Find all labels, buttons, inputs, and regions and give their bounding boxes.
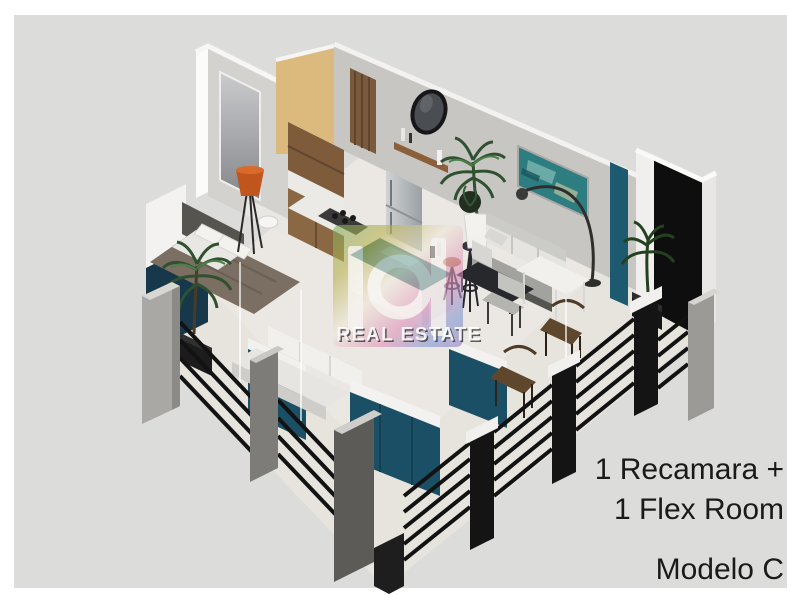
- caption-block: 1 Recamara + 1 Flex Room Modelo C: [595, 450, 784, 590]
- caption-model: Modelo C: [595, 550, 784, 590]
- watermark-label: REAL ESTATE REAL ESTATE: [337, 325, 484, 348]
- svg-text:REAL ESTATE: REAL ESTATE: [337, 325, 482, 346]
- teal-accent-strip: [610, 162, 628, 306]
- wood-slat-door: [350, 68, 376, 154]
- caption-line-2: 1 Flex Room: [595, 490, 784, 530]
- caption-line-1: 1 Recamara +: [595, 450, 784, 490]
- real-estate-render-image: REAL ESTATE REAL ESTATE 1 Recamara + 1 F…: [0, 0, 800, 600]
